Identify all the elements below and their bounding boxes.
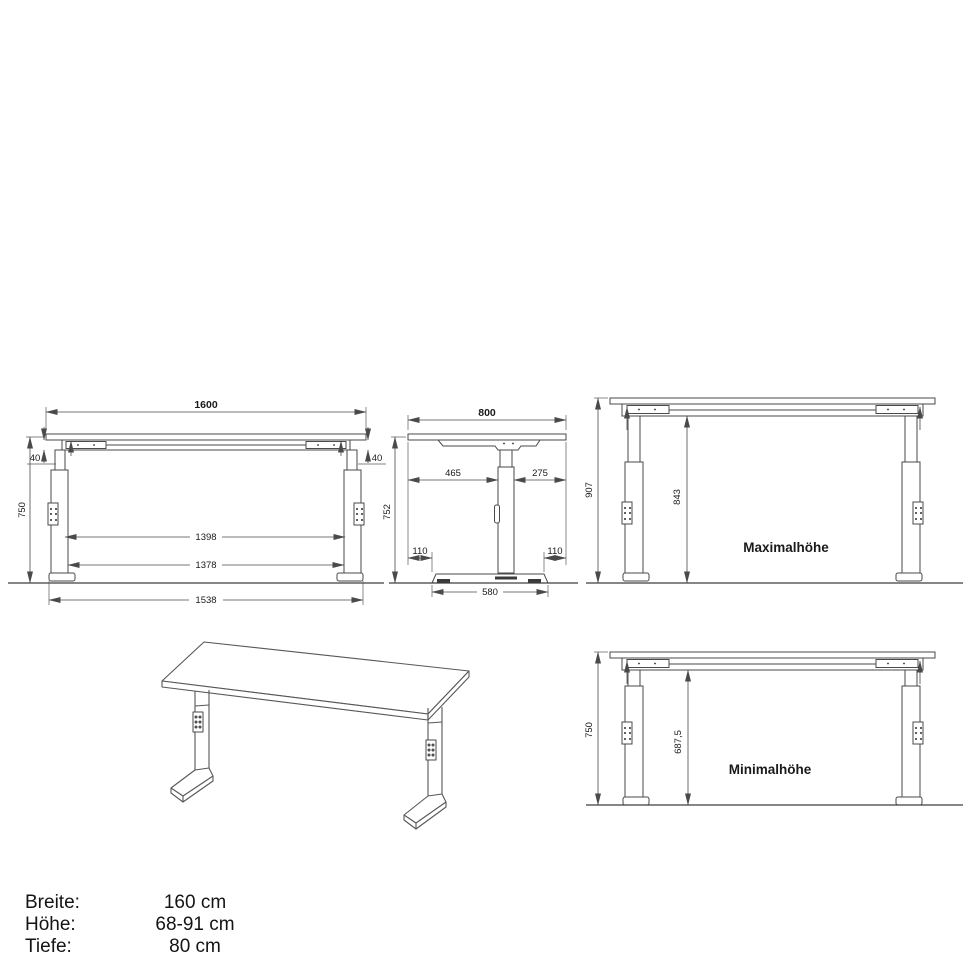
- side-view: 800 465 275 752: [382, 407, 578, 598]
- left-leg-max: [622, 416, 649, 581]
- base-foot: [432, 574, 548, 583]
- dim-total-750: 750: [584, 652, 608, 805]
- max-height-view: 907 843 Maximalhöhe: [584, 398, 963, 583]
- dim-label-inner-upper: 1398: [195, 532, 216, 543]
- dim-label-top-left: 465: [445, 468, 461, 479]
- tabletop-side: [408, 434, 566, 440]
- spec-value-tiefe: 80 cm: [135, 936, 255, 958]
- tabletop-min: [610, 652, 935, 658]
- dim-inner-1398: 1398: [65, 531, 345, 543]
- tabletop-max: [610, 398, 935, 404]
- min-height-label: Minimalhöhe: [729, 762, 812, 777]
- left-leg: [48, 450, 75, 581]
- right-foot-3d: [404, 794, 446, 823]
- dim-label-overhang-left: 40: [30, 453, 41, 464]
- dim-label-overhang-right: 40: [372, 453, 383, 464]
- dim-height-752: 752: [382, 437, 406, 583]
- dim-label-foot-inset-right: 110: [547, 546, 562, 557]
- dim-label-min-total: 750: [584, 722, 595, 738]
- dim-label-foot-span: 1538: [195, 595, 216, 606]
- dim-foot-span-1538: 1538: [49, 581, 363, 606]
- dim-top-offsets: 465 275: [408, 442, 566, 565]
- dim-label-height: 750: [17, 502, 28, 518]
- right-leg-3d: [404, 707, 446, 829]
- spec-row-breite: Breite: 160 cm: [25, 892, 255, 914]
- right-leg-min: [896, 670, 923, 805]
- dim-label-width-top: 1600: [194, 399, 218, 411]
- frame-rail: [62, 440, 350, 450]
- left-foot-3d: [171, 768, 213, 796]
- dim-total-907: 907: [584, 398, 608, 583]
- dim-label-side-height: 752: [382, 504, 393, 520]
- left-leg-min: [622, 670, 649, 805]
- dim-clearance-687-5: 687,5: [673, 670, 688, 805]
- spec-label-hoehe: Höhe:: [25, 914, 135, 936]
- perspective-view: [162, 642, 469, 829]
- spec-row-hoehe: Höhe: 68-91 cm: [25, 914, 255, 936]
- column-clip: [495, 505, 500, 523]
- dim-label-max-total: 907: [584, 482, 595, 498]
- column: [495, 450, 515, 573]
- drawing-svg: 1600: [0, 0, 970, 880]
- dim-label-max-clearance: 843: [672, 489, 683, 505]
- spec-table: Breite: 160 cm Höhe: 68-91 cm Tiefe: 80 …: [25, 892, 255, 958]
- right-leg: [337, 450, 364, 581]
- dim-depth-800: 800: [408, 407, 566, 430]
- right-foot: [337, 573, 363, 581]
- spec-label-tiefe: Tiefe:: [25, 936, 135, 958]
- spec-row-tiefe: Tiefe: 80 cm: [25, 936, 255, 958]
- dim-label-depth: 800: [478, 407, 496, 419]
- tabletop: [46, 434, 366, 440]
- dim-label-min-clearance: 687,5: [673, 730, 684, 754]
- left-foot: [49, 573, 75, 581]
- top-bracket: [438, 440, 540, 450]
- technical-drawing-sheet: 1600: [0, 0, 970, 971]
- dim-foot-length-580: 580: [432, 585, 548, 598]
- dim-inner-1378: 1378: [68, 559, 344, 571]
- frame-rail-min: [622, 658, 923, 670]
- spec-value-hoehe: 68-91 cm: [135, 914, 255, 936]
- dim-label-foot-inset-left: 110: [412, 546, 427, 557]
- spec-value-breite: 160 cm: [135, 892, 255, 914]
- dim-clearance-843: 843: [672, 416, 687, 583]
- dim-width-1600: 1600: [46, 399, 366, 430]
- dim-label-inner-lower: 1378: [195, 560, 216, 571]
- frame-rail-max: [622, 404, 923, 416]
- dim-foot-insets: 110 110: [408, 546, 566, 572]
- front-view: 1600: [8, 399, 386, 606]
- dim-label-top-right: 275: [532, 468, 548, 479]
- min-height-view: 750 687,5 Minimalhöhe: [584, 652, 963, 805]
- dim-overhang-right-40: 40: [358, 427, 386, 464]
- right-leg-max: [896, 416, 923, 581]
- max-height-label: Maximalhöhe: [743, 540, 829, 555]
- dim-label-foot-length: 580: [482, 587, 498, 598]
- dim-overhang-left-40: 40: [27, 427, 56, 464]
- spec-label-breite: Breite:: [25, 892, 135, 914]
- left-leg-3d: [171, 690, 213, 802]
